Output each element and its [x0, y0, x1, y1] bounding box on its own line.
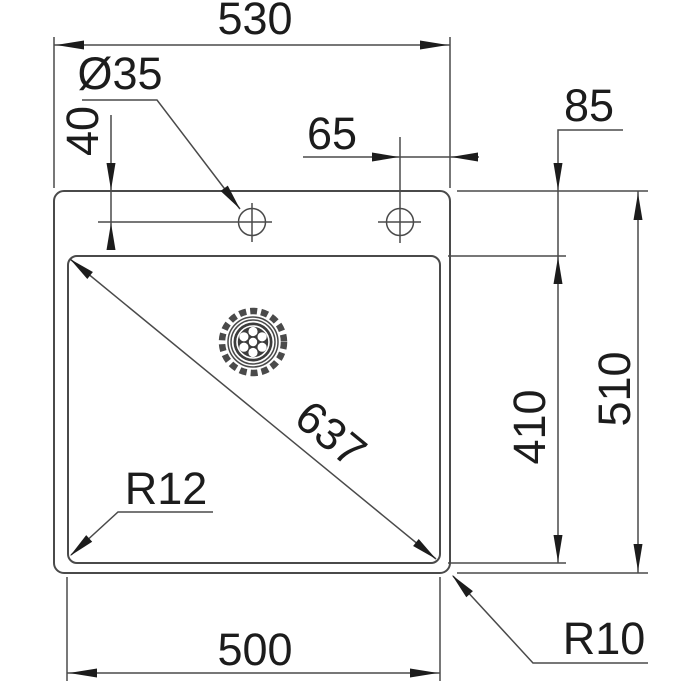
- dimension-hole-right-offset: 65: [303, 108, 479, 162]
- dimension-bowl-diagonal: 637: [70, 259, 436, 559]
- dimension-hole-top-offset: 40: [57, 106, 116, 250]
- dimension-rim-to-bowl: 85: [554, 80, 624, 190]
- dimension-outer-corner-radius: R10: [452, 575, 648, 664]
- dim-label-637: 637: [286, 390, 376, 477]
- faucet-hole-left: [98, 203, 272, 242]
- dim-label-r12: R12: [125, 463, 208, 514]
- dim-label-r10: R10: [563, 613, 646, 664]
- dim-label-d35: Ø35: [77, 48, 162, 99]
- drain-icon: [222, 311, 284, 373]
- sink-dimension-diagram: 530 Ø35 40 65 85 410: [0, 0, 700, 700]
- dim-label-65: 65: [307, 108, 357, 159]
- technical-drawing-canvas: 530 Ø35 40 65 85 410: [0, 0, 700, 700]
- dimension-bowl-corner-radius: R12: [70, 463, 213, 556]
- dim-label-500: 500: [217, 624, 292, 675]
- dimension-overall-depth: 510: [589, 191, 643, 573]
- dimension-bowl-width: 500: [67, 577, 440, 681]
- dim-label-85: 85: [564, 80, 614, 131]
- dimension-bowl-depth: 410: [504, 190, 563, 563]
- dim-label-410: 410: [504, 389, 555, 464]
- dim-label-40: 40: [57, 106, 108, 156]
- dim-label-530: 530: [217, 0, 292, 44]
- dim-label-510: 510: [589, 351, 640, 426]
